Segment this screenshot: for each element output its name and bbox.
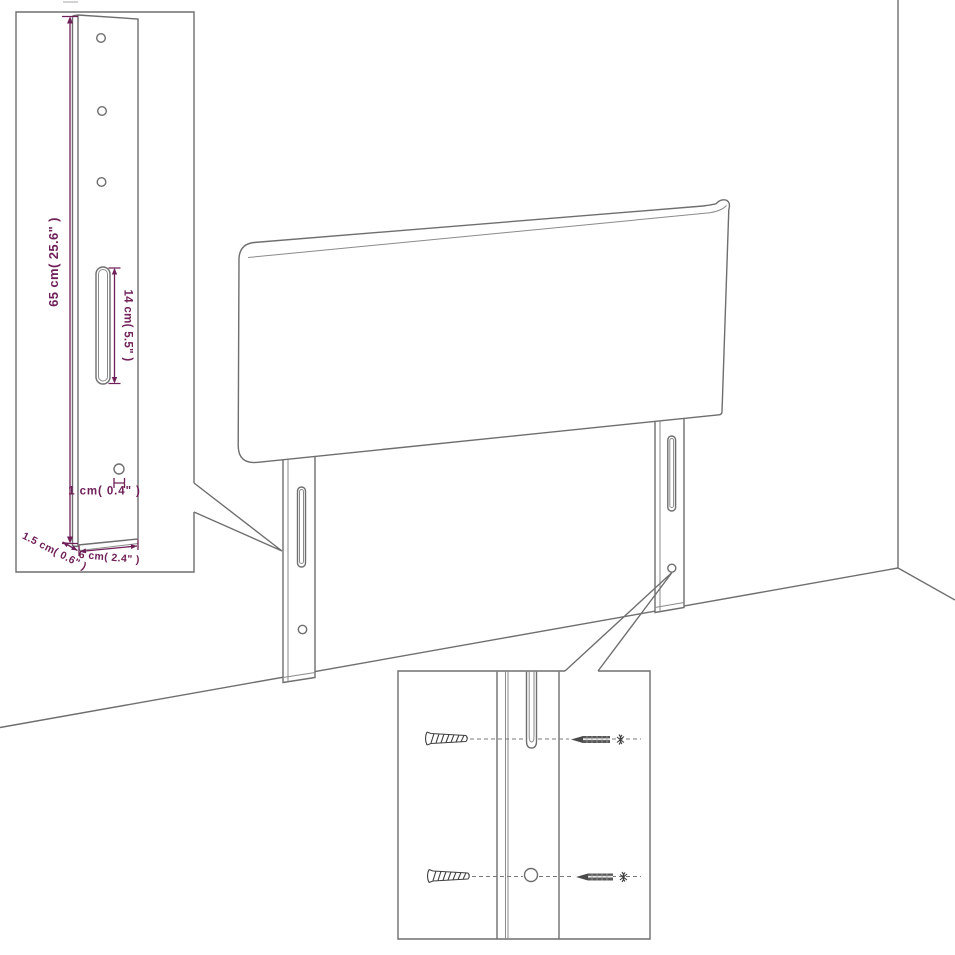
- screw-icon: [571, 735, 624, 745]
- headboard-right-leg: [655, 407, 684, 613]
- closeup-slot: [527, 672, 537, 748]
- inset-leg-side-face: [73, 15, 79, 547]
- callout-lines-right: [565, 573, 672, 672]
- inset-hole-1: [97, 34, 106, 43]
- wall-plug-icon: [428, 870, 470, 883]
- slot-label: 14 cm( 5.5" ): [122, 290, 134, 362]
- arrowhead: [112, 268, 117, 275]
- inset-slot-inner: [99, 270, 108, 382]
- inset-leg-drawing: [73, 15, 139, 551]
- inset-hole-3: [97, 178, 106, 187]
- callout-lines-left: [194, 483, 282, 551]
- product-diagram: 65 cm( 25.6" ) 14 cm( 5.5" ) 1 cm( 0.4" …: [0, 0, 955, 955]
- floor-line-right: [898, 568, 955, 600]
- closeup-hole: [525, 869, 538, 882]
- callout-wedge-left: [194, 483, 282, 551]
- dimension-hole: 1 cm( 0.4" ): [68, 478, 141, 498]
- leg-detail-inset: 65 cm( 25.6" ) 14 cm( 5.5" ) 1 cm( 0.4" …: [16, 12, 194, 573]
- wall-plug-icon: [426, 732, 468, 745]
- callout-wedge-right: [565, 573, 672, 672]
- height-label: 65 cm( 25.6" ): [46, 217, 61, 307]
- arrowhead: [112, 377, 117, 384]
- mounting-inset-border: [398, 671, 650, 939]
- inset-hole-2: [98, 107, 107, 116]
- diagram-canvas: 65 cm( 25.6" ) 14 cm( 5.5" ) 1 cm( 0.4" …: [0, 0, 955, 955]
- hole-label: 1 cm( 0.4" ): [68, 486, 141, 498]
- dimension-slot: 14 cm( 5.5" ): [109, 268, 134, 384]
- closeup-slot-inner: [529, 672, 534, 742]
- mounting-detail-inset: [398, 671, 650, 939]
- headboard-left-leg: [283, 447, 315, 683]
- closeup-leg-inner-edges: [506, 672, 509, 939]
- dimension-height-line: [62, 17, 78, 544]
- inset-small-hole: [114, 464, 124, 474]
- floor-line-left: [0, 568, 898, 728]
